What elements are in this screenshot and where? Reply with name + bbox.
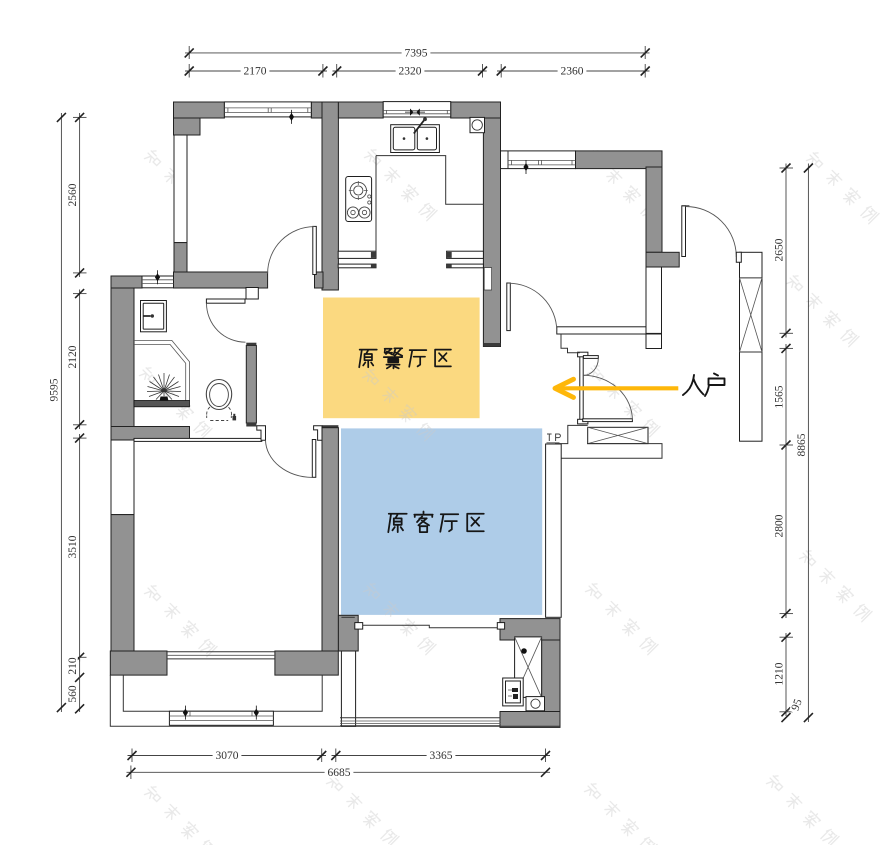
svg-text:2170: 2170 xyxy=(244,66,267,78)
svg-text:560: 560 xyxy=(67,685,79,703)
svg-text:3365: 3365 xyxy=(430,750,453,762)
svg-text:6685: 6685 xyxy=(328,767,351,779)
svg-text:1210: 1210 xyxy=(774,662,786,685)
svg-text:2560: 2560 xyxy=(67,183,79,206)
svg-text:3070: 3070 xyxy=(216,750,239,762)
svg-text:2120: 2120 xyxy=(67,345,79,368)
svg-text:2360: 2360 xyxy=(561,66,584,78)
svg-text:2320: 2320 xyxy=(399,66,422,78)
svg-text:2650: 2650 xyxy=(774,238,786,261)
svg-text:7395: 7395 xyxy=(405,48,428,60)
svg-text:210: 210 xyxy=(67,657,79,675)
svg-text:3510: 3510 xyxy=(67,535,79,558)
svg-text:2800: 2800 xyxy=(774,514,786,537)
svg-text:1565: 1565 xyxy=(774,385,786,408)
svg-text:9595: 9595 xyxy=(49,378,61,401)
svg-text:8865: 8865 xyxy=(796,433,808,456)
